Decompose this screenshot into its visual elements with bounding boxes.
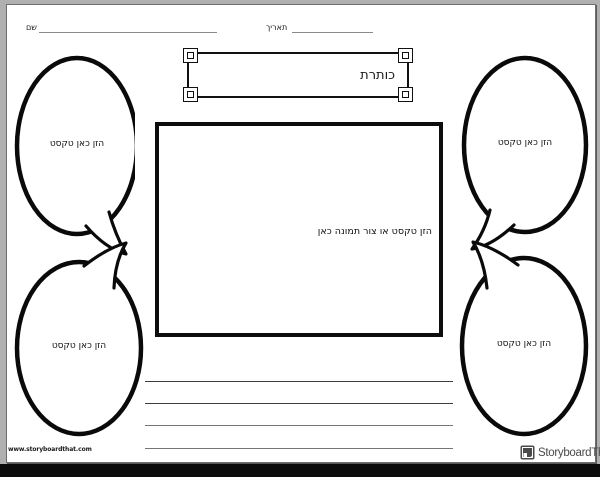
speech-bubble-icon [12, 240, 144, 440]
storyboardthat-logo: StoryboardThat [520, 445, 600, 460]
date-line[interactable] [292, 32, 373, 33]
worksheet-canvas: שם תאריך כותרת הזן טקסט או צור תמונה כאן… [0, 0, 600, 477]
writing-line[interactable] [145, 448, 453, 449]
name-line[interactable] [39, 32, 217, 33]
writing-line[interactable] [145, 403, 453, 404]
bubble-text: הזן כאן טקסט [462, 339, 586, 349]
date-label: תאריך [266, 23, 287, 32]
bubble-text: הזן כאן טקסט [464, 138, 586, 148]
writing-line[interactable] [145, 381, 453, 382]
brand-name: StoryboardThat [538, 447, 600, 459]
bottom-black-bar [0, 464, 600, 477]
storyboard-cell-icon [520, 445, 535, 460]
speech-bubble-icon [460, 50, 590, 255]
name-label: שם [26, 23, 37, 32]
banner-corner-ornament [183, 87, 198, 102]
speech-bubble-icon [10, 50, 135, 256]
banner-corner-ornament [398, 48, 413, 63]
website-url: www.storyboardthat.com [8, 446, 92, 453]
image-text-box[interactable]: הזן טקסט או צור תמונה כאן [155, 122, 443, 337]
image-box-placeholder: הזן טקסט או צור תמונה כאן [318, 226, 432, 237]
banner-corner-ornament [183, 48, 198, 63]
bubble-text: הזן כאן טקסט [17, 341, 141, 351]
speech-bubble-top-left[interactable]: הזן כאן טקסט [10, 50, 135, 256]
speech-bubble-bottom-right[interactable]: הזן כאן טקסט [458, 238, 592, 440]
title-text: כותרת [360, 54, 395, 96]
speech-bubble-top-right[interactable]: הזן כאן טקסט [460, 50, 590, 255]
banner-corner-ornament [398, 87, 413, 102]
title-banner[interactable]: כותרת [187, 52, 409, 98]
speech-bubble-bottom-left[interactable]: הזן כאן טקסט [12, 240, 144, 440]
bubble-text: הזן כאן טקסט [17, 139, 137, 149]
writing-line[interactable] [145, 425, 453, 426]
